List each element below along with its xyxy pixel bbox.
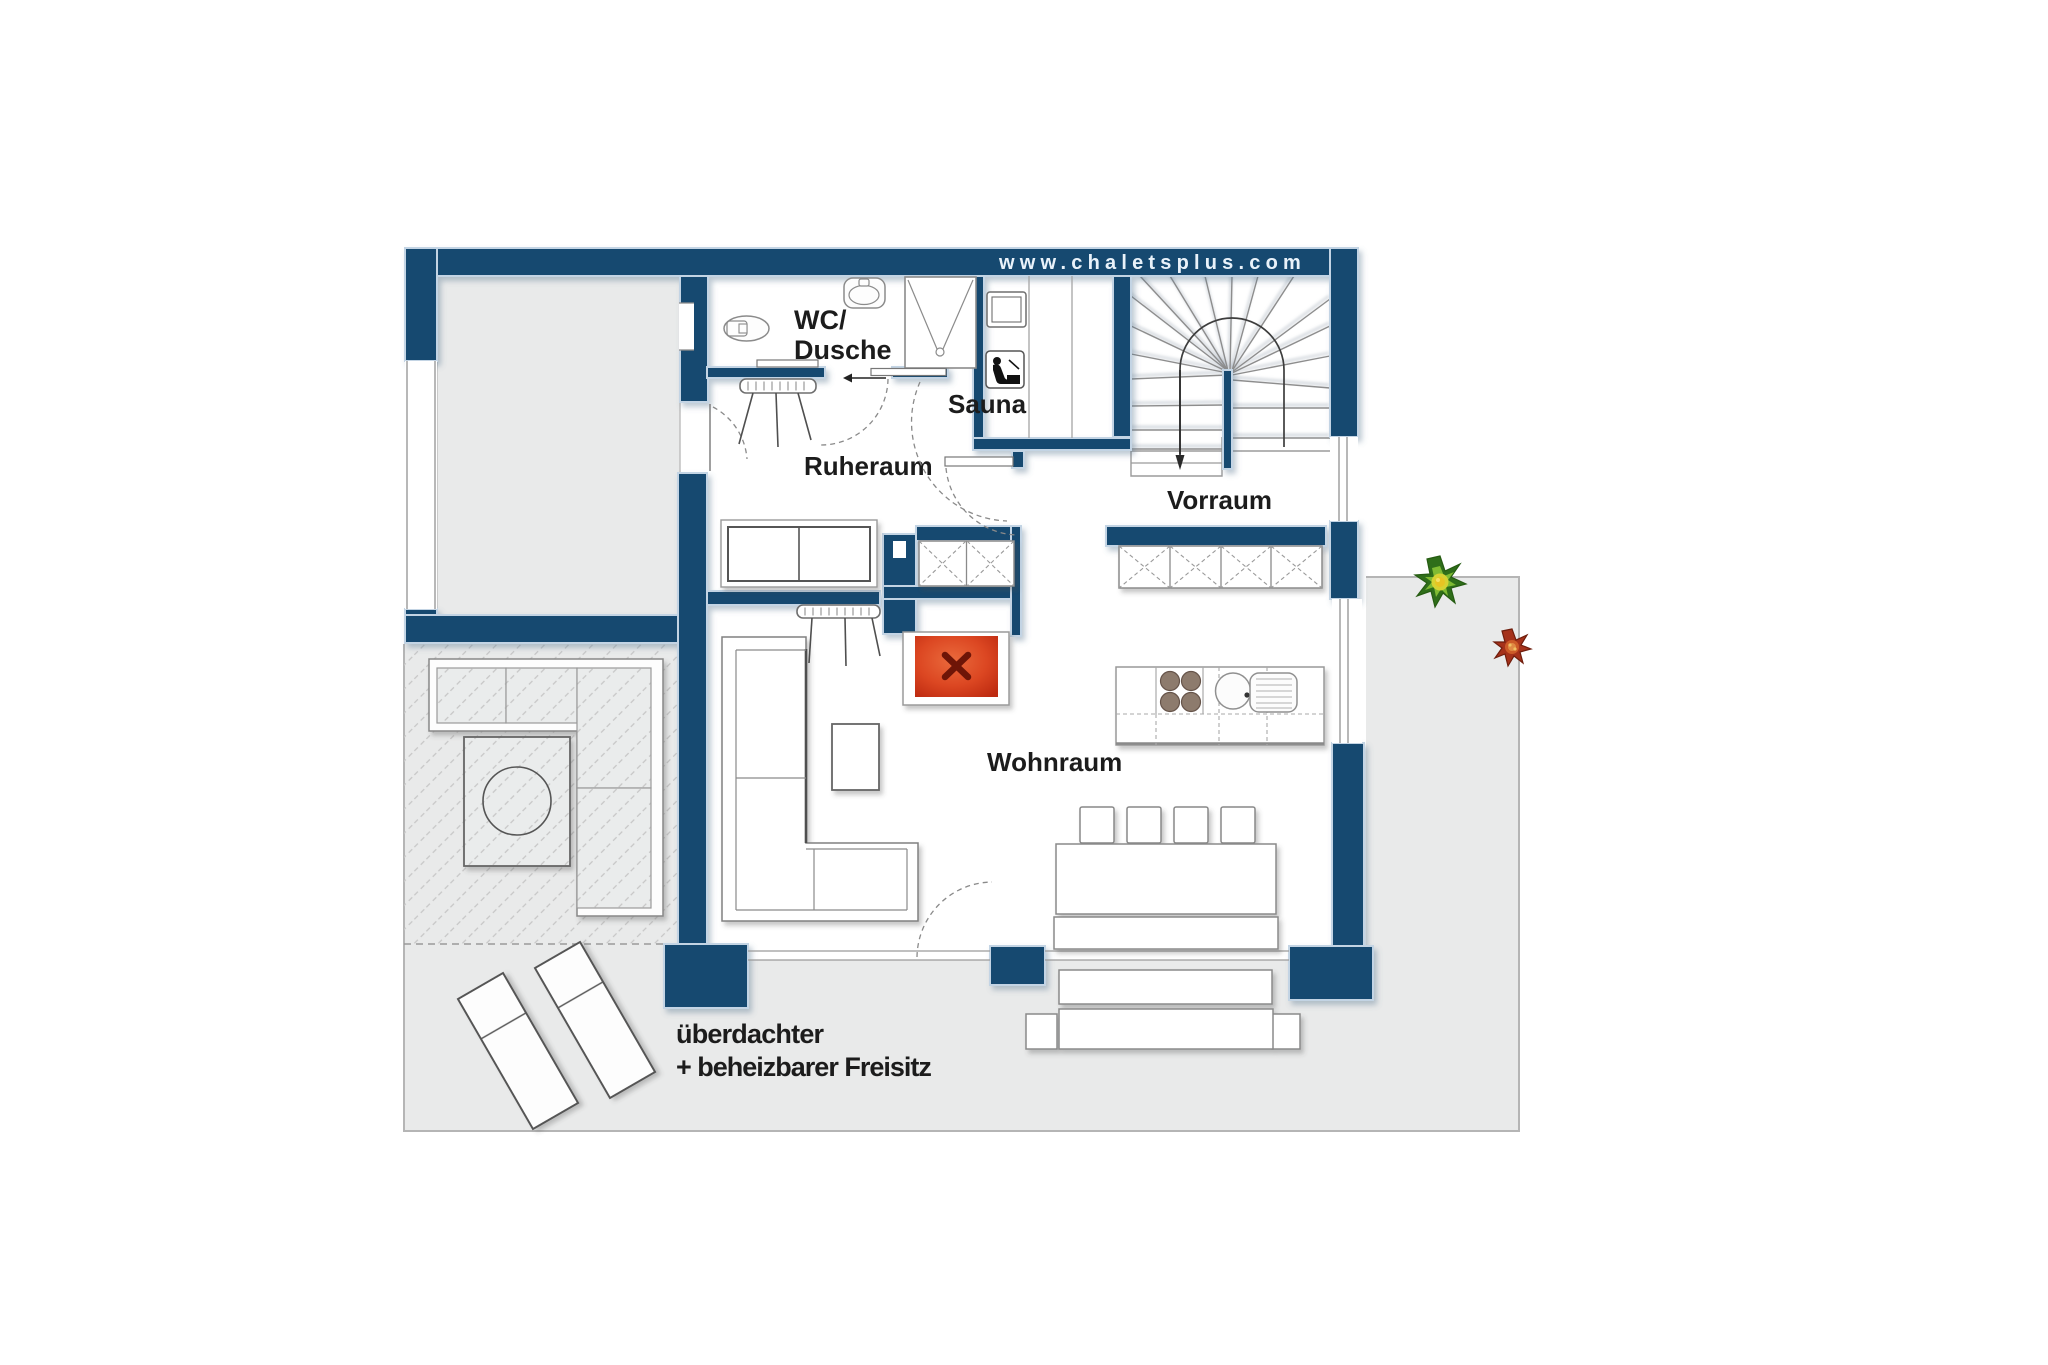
svg-text:Ruheraum: Ruheraum: [804, 451, 933, 481]
svg-text:+ beheizbarer Freisitz: + beheizbarer Freisitz: [676, 1052, 931, 1082]
svg-text:überdachter: überdachter: [676, 1019, 825, 1049]
svg-text:Vorraum: Vorraum: [1167, 485, 1272, 515]
svg-text:WC/: WC/: [794, 305, 847, 335]
svg-text:Wohnraum: Wohnraum: [987, 747, 1122, 777]
svg-text:www.chaletsplus.com: www.chaletsplus.com: [998, 252, 1306, 274]
svg-text:Sauna: Sauna: [948, 389, 1027, 419]
